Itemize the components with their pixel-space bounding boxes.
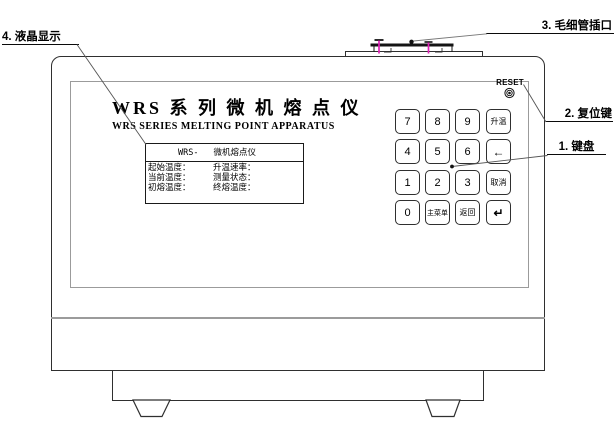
callout-capillary-port: 3. 毛细管插口 (486, 19, 614, 34)
lcd-field-heat-rate: 升温速率： (213, 163, 256, 173)
key-heat-up[interactable]: 升温 (486, 109, 511, 134)
lcd-row: 起始温度： 升温速率： (148, 163, 301, 173)
key-2[interactable]: 2 (425, 170, 450, 195)
key-3[interactable]: 3 (455, 170, 480, 195)
callout-keyboard: 1. 键盘 (547, 140, 606, 155)
key-main-menu[interactable]: 主菜单 (425, 200, 450, 225)
device-base (112, 370, 484, 401)
lcd-field-initial-melt: 初熔温度： (148, 183, 213, 193)
key-9[interactable]: 9 (455, 109, 480, 134)
lcd-model-text: WRS- (178, 148, 198, 158)
lcd-row: 初熔温度： 终熔温度： (148, 183, 301, 193)
key-cancel[interactable]: 取消 (486, 170, 511, 195)
key-return[interactable]: 返回 (455, 200, 480, 225)
lcd-field-start-temp: 起始温度： (148, 163, 213, 173)
foot-left (133, 400, 170, 417)
key-8[interactable]: 8 (425, 109, 450, 134)
key-7[interactable]: 7 (395, 109, 420, 134)
lcd-field-final-melt: 终熔温度： (213, 183, 256, 193)
lcd-name-text: 微机熔点仪 (213, 148, 256, 158)
case-seam-line (51, 317, 545, 319)
key-1[interactable]: 1 (395, 170, 420, 195)
device-title-chinese: WRS 系 列 微 机 熔 点 仪 (112, 94, 362, 120)
lcd-field-current-temp: 当前温度： (148, 173, 213, 183)
key-0[interactable]: 0 (395, 200, 420, 225)
leader-line-capillary (414, 34, 488, 41)
key-4[interactable]: 4 (395, 139, 420, 164)
key-5[interactable]: 5 (425, 139, 450, 164)
melting-point-apparatus-diagram: WRS 系 列 微 机 熔 点 仪 WRS SERIES MELTING POI… (0, 0, 614, 428)
anchor-dot-capillary (409, 40, 413, 44)
key-6[interactable]: 6 (455, 139, 480, 164)
reset-label: RESET (494, 78, 526, 87)
lcd-row: 当前温度： 测量状态： (148, 173, 301, 183)
lcd-field-measure-status: 测量状态： (213, 173, 256, 183)
key-backspace[interactable]: ← (486, 139, 511, 164)
capillary-holder-bar (371, 44, 454, 47)
callout-lcd-display: 4. 液晶显示 (2, 30, 79, 45)
foot-right (426, 400, 460, 417)
lcd-body: 起始温度： 升温速率： 当前温度： 测量状态： 初熔温度： 终熔温度： (146, 162, 303, 194)
lcd-header: WRS- 微机熔点仪 (146, 144, 303, 162)
callout-reset-key: 2. 复位键 (546, 107, 613, 122)
key-enter[interactable]: ↵ (486, 200, 511, 225)
device-title-english: WRS SERIES MELTING POINT APPARATUS (112, 121, 335, 132)
lcd-display: WRS- 微机熔点仪 起始温度： 升温速率： 当前温度： 测量状态： 初熔温度：… (145, 143, 304, 204)
